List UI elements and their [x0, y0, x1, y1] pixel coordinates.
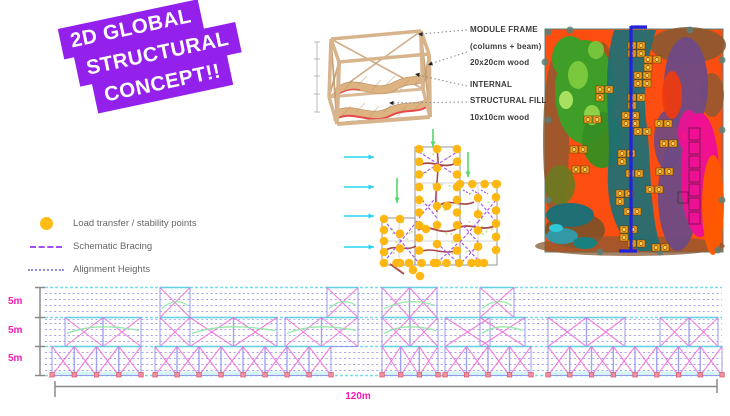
internal-fill-callout: INTERNAL STRUCTURAL FILL 10x10cm wood [470, 77, 590, 127]
legend-item-alignment-heights: Alignment Heights [28, 262, 197, 277]
load-point-dot-icon [28, 217, 64, 230]
callout-line: 20x20cm wood [470, 55, 590, 72]
legend-label: Schematic Bracing [73, 241, 152, 252]
legend-label: Load transfer / stability points [73, 218, 197, 229]
legend-item-schematic-bracing: Schematic Bracing [28, 239, 197, 254]
height-label-5m: 5m [8, 296, 22, 307]
width-label-120m: 120m [336, 391, 380, 402]
callout-line: (columns + beam) [470, 39, 590, 56]
callout-line: INTERNAL [470, 77, 590, 94]
dotted-line-icon [28, 269, 64, 271]
callout-line: STRUCTURAL FILL [470, 93, 590, 110]
callout-line: 10x10cm wood [470, 110, 590, 127]
dashed-line-icon [28, 246, 64, 248]
legend-label: Alignment Heights [73, 264, 150, 275]
slide: { "title": {"lines": ["2D GLOBAL", "STRU… [0, 0, 730, 411]
callout-line: MODULE FRAME [470, 22, 590, 39]
height-label-5m: 5m [8, 353, 22, 364]
height-label-5m: 5m [8, 325, 22, 336]
module-frame-callout: MODULE FRAME (columns + beam) 20x20cm wo… [470, 22, 590, 72]
legend: Load transfer / stability points Schemat… [28, 216, 197, 285]
module-frame-annotations: MODULE FRAME (columns + beam) 20x20cm wo… [470, 22, 590, 126]
legend-item-load-points: Load transfer / stability points [28, 216, 197, 231]
